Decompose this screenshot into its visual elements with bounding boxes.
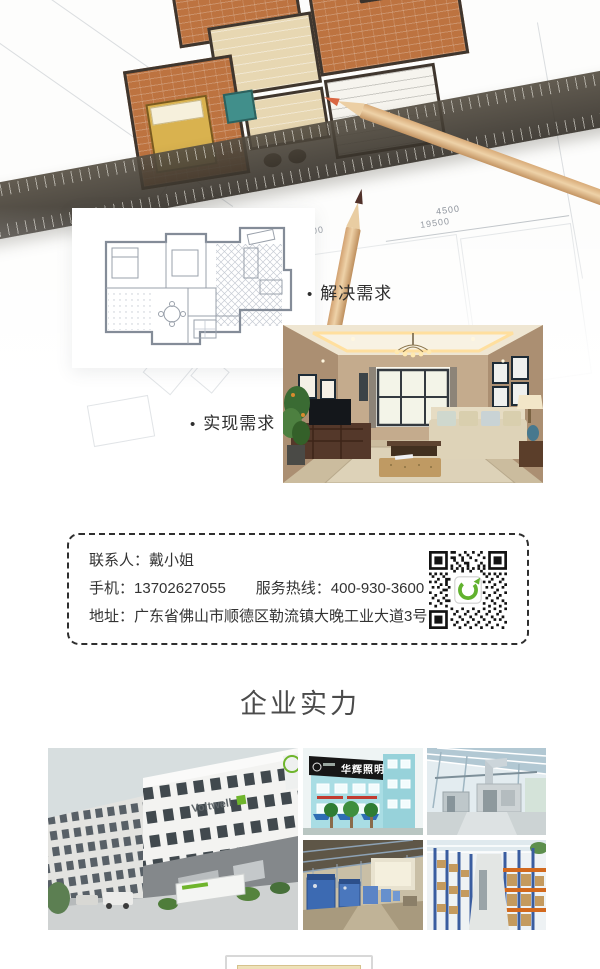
mobile-value: 13702627055 [134, 580, 226, 597]
certificate-thumbnail-partial [225, 955, 373, 969]
bullet-marker: • [307, 286, 313, 303]
hero-banner: 5100 19500 4500 [0, 0, 600, 492]
bullet-marker: • [190, 416, 196, 433]
bullet-realize-needs: •实现需求 [190, 409, 275, 434]
hotline-label: 服务热线： [256, 580, 331, 597]
contact-person-label: 联系人： [89, 552, 149, 569]
address-label: 地址： [89, 608, 134, 625]
mobile-label: 手机： [89, 580, 134, 597]
gallery-photo-warehouse-racks [427, 840, 546, 930]
contact-info: 联系人：戴小姐 手机：13702627055服务热线：400-930-3600 … [89, 547, 427, 631]
section-title-enterprise-strength: 企业实力 [0, 682, 600, 721]
contact-person-value: 戴小姐 [149, 552, 194, 569]
certificate-image-top [237, 965, 361, 969]
living-room-photo [283, 325, 543, 483]
hotline-value: 400-930-3600 [331, 580, 424, 597]
gallery-photo-voltwell-building: Voltwell [48, 748, 298, 930]
contact-card: 联系人：戴小姐 手机：13702627055服务热线：400-930-3600 … [67, 533, 529, 645]
qr-code-icon [429, 551, 507, 629]
product-detail-page: 5100 19500 4500 [0, 0, 600, 969]
floorplan-sketch-card [72, 208, 315, 368]
floorplan-sketch-drawing [88, 220, 300, 356]
contact-line-person: 联系人：戴小姐 [89, 547, 427, 575]
gallery-grid: Voltwell [48, 748, 546, 930]
contact-line-address: 地址：广东省佛山市顺德区勒流镇大晚工业大道3号 [89, 603, 427, 631]
address-value: 广东省佛山市顺德区勒流镇大晚工业大道3号 [134, 608, 427, 625]
gallery-photo-huahui-building: 华辉照明 [303, 748, 423, 835]
contact-line-phone: 手机：13702627055服务热线：400-930-3600 [89, 575, 427, 603]
huahui-sign-text: 华辉照明 [341, 763, 385, 776]
gallery-photo-coating-workshop [427, 748, 546, 835]
gallery-photo-factory-floor [303, 840, 423, 930]
bullet-solve-needs: •解决需求 [307, 279, 392, 304]
